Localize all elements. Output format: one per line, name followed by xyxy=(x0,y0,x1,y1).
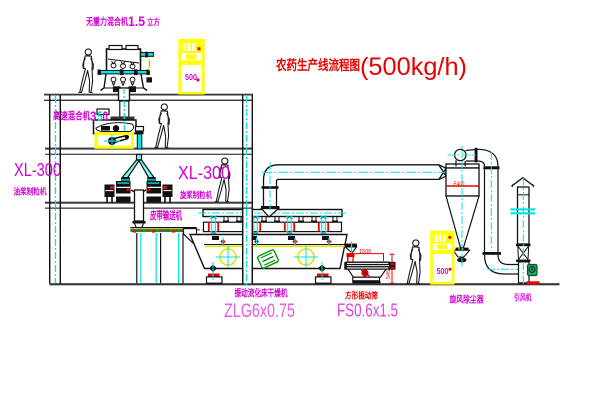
svg-text:旋桨制粒机: 旋桨制粒机 xyxy=(179,190,212,200)
svg-text:振动流化床干燥机: 振动流化床干燥机 xyxy=(235,288,288,300)
svg-text:F400: F400 xyxy=(454,181,465,187)
svg-text:立方: 立方 xyxy=(147,17,160,27)
svg-text:1500: 1500 xyxy=(359,249,371,255)
svg-text:50: 50 xyxy=(97,108,108,124)
svg-text:ZLG6x0.75: ZLG6x0.75 xyxy=(224,300,295,322)
svg-text:1.5: 1.5 xyxy=(128,13,145,29)
svg-text:XL-300: XL-300 xyxy=(178,163,230,183)
svg-text:500: 500 xyxy=(437,266,449,276)
svg-text:XL-300: XL-300 xyxy=(14,160,61,180)
svg-text:油桨制粒机: 油桨制粒机 xyxy=(14,187,47,197)
svg-text:引风机: 引风机 xyxy=(514,293,532,303)
svg-text:500: 500 xyxy=(185,72,197,82)
svg-text:FS0.6x1.5: FS0.6x1.5 xyxy=(337,300,398,321)
svg-text:皮带输送机: 皮带输送机 xyxy=(149,208,182,222)
svg-text:(500kg/h): (500kg/h) xyxy=(360,53,467,81)
svg-text:高速混合机: 高速混合机 xyxy=(53,110,90,123)
svg-text:农药生产线流程图: 农药生产线流程图 xyxy=(275,57,360,73)
svg-text:无重力混合机: 无重力混合机 xyxy=(85,16,128,28)
svg-text:3: 3 xyxy=(90,108,97,124)
svg-text:545: 545 xyxy=(386,270,392,279)
svg-text:旋风除尘器: 旋风除尘器 xyxy=(449,294,484,305)
